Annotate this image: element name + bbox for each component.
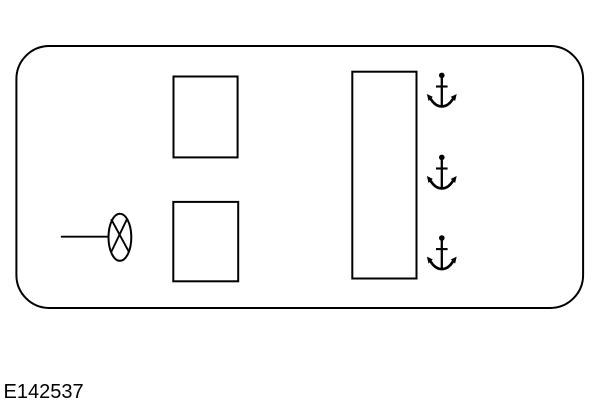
svg-text:E142537: E142537 (4, 381, 84, 403)
